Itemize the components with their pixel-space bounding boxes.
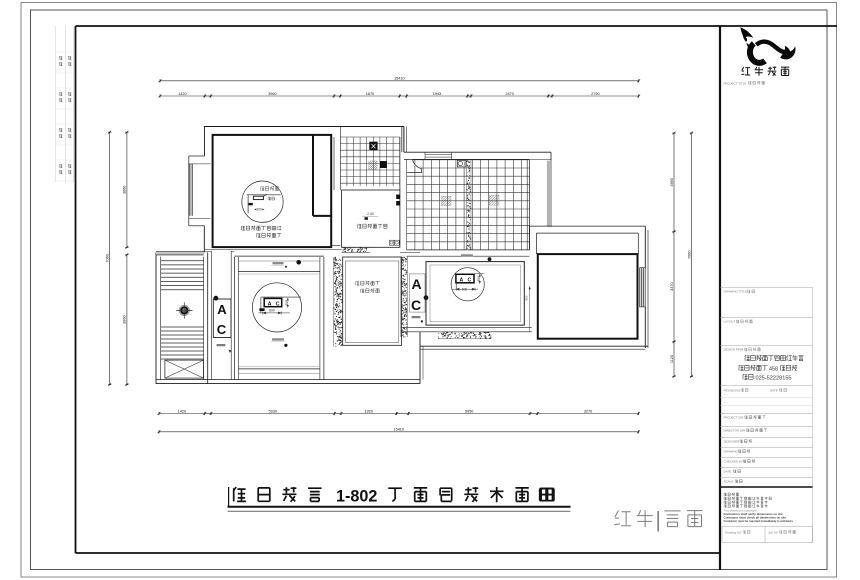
svg-text:A: A — [460, 277, 464, 283]
svg-text:Drawing NO: Drawing NO — [725, 531, 742, 535]
svg-text:A: A — [217, 302, 227, 317]
svg-text:Job NO: Job NO — [768, 531, 779, 535]
svg-text:600: 600 — [462, 288, 468, 292]
svg-text:C: C — [411, 297, 421, 313]
svg-text:2470: 2470 — [505, 92, 513, 96]
svg-text:5950: 5950 — [465, 409, 473, 413]
svg-text:15410: 15410 — [393, 428, 404, 432]
svg-text:DIRECTOR DIR: DIRECTOR DIR — [724, 429, 746, 433]
svg-text:600: 600 — [269, 309, 275, 313]
svg-text:300: 300 — [256, 208, 262, 212]
svg-text:600: 600 — [285, 300, 289, 306]
svg-text:C: C — [276, 301, 280, 307]
svg-text:2790: 2790 — [591, 92, 599, 96]
svg-text:-2.80: -2.80 — [366, 212, 374, 216]
svg-text:DRAWING: DRAWING — [724, 450, 739, 454]
svg-text:900: 900 — [525, 295, 529, 300]
svg-text:1920: 1920 — [365, 409, 373, 413]
svg-text:1420: 1420 — [178, 92, 186, 96]
svg-text:LAYOUT: LAYOUT — [724, 320, 736, 324]
svg-text:DESIGNER: DESIGNER — [724, 440, 741, 444]
svg-text:3660: 3660 — [123, 186, 127, 194]
svg-text:Contractor must be reported im: Contractor must be reported immediately … — [724, 519, 794, 523]
svg-text:1943: 1943 — [433, 92, 441, 96]
svg-text:CHECKED BY: CHECKED BY — [724, 460, 744, 464]
svg-text:DATE: DATE — [724, 470, 732, 474]
svg-text:A: A — [268, 301, 272, 307]
svg-text:3960: 3960 — [123, 315, 127, 323]
svg-text:3370: 3370 — [670, 282, 674, 290]
svg-text:DRAWING TITLE: DRAWING TITLE — [724, 290, 747, 294]
svg-text:DATE: DATE — [770, 388, 778, 392]
svg-text:C: C — [217, 322, 227, 337]
svg-text:∶025-52228155: ∶025-52228155 — [754, 375, 792, 381]
svg-text:15410: 15410 — [394, 77, 405, 81]
svg-text:1420: 1420 — [178, 409, 186, 413]
svg-text:7060: 7060 — [106, 254, 110, 262]
svg-text:5930: 5930 — [269, 409, 277, 413]
svg-text:DESIGN FIRM: DESIGN FIRM — [724, 348, 744, 352]
svg-text:1120: 1120 — [670, 355, 674, 363]
svg-text:4990: 4990 — [670, 178, 674, 186]
svg-text:3270: 3270 — [584, 409, 592, 413]
svg-text:PROJECT TITLE: PROJECT TITLE — [724, 81, 747, 85]
svg-text:Contractor must check all dime: Contractor must check all dimensions on … — [724, 516, 787, 520]
svg-text:PROJECT DIR: PROJECT DIR — [724, 416, 745, 420]
svg-text:C: C — [468, 277, 472, 283]
svg-text:REVISIONS: REVISIONS — [724, 388, 740, 392]
svg-text:3960: 3960 — [268, 92, 276, 96]
svg-text:1-802: 1-802 — [336, 487, 377, 505]
svg-text:1870: 1870 — [366, 92, 374, 96]
svg-text:458: 458 — [769, 366, 778, 372]
svg-text:7060: 7060 — [687, 250, 691, 258]
svg-text:A: A — [411, 276, 421, 292]
svg-text:SCALE: SCALE — [724, 480, 734, 484]
